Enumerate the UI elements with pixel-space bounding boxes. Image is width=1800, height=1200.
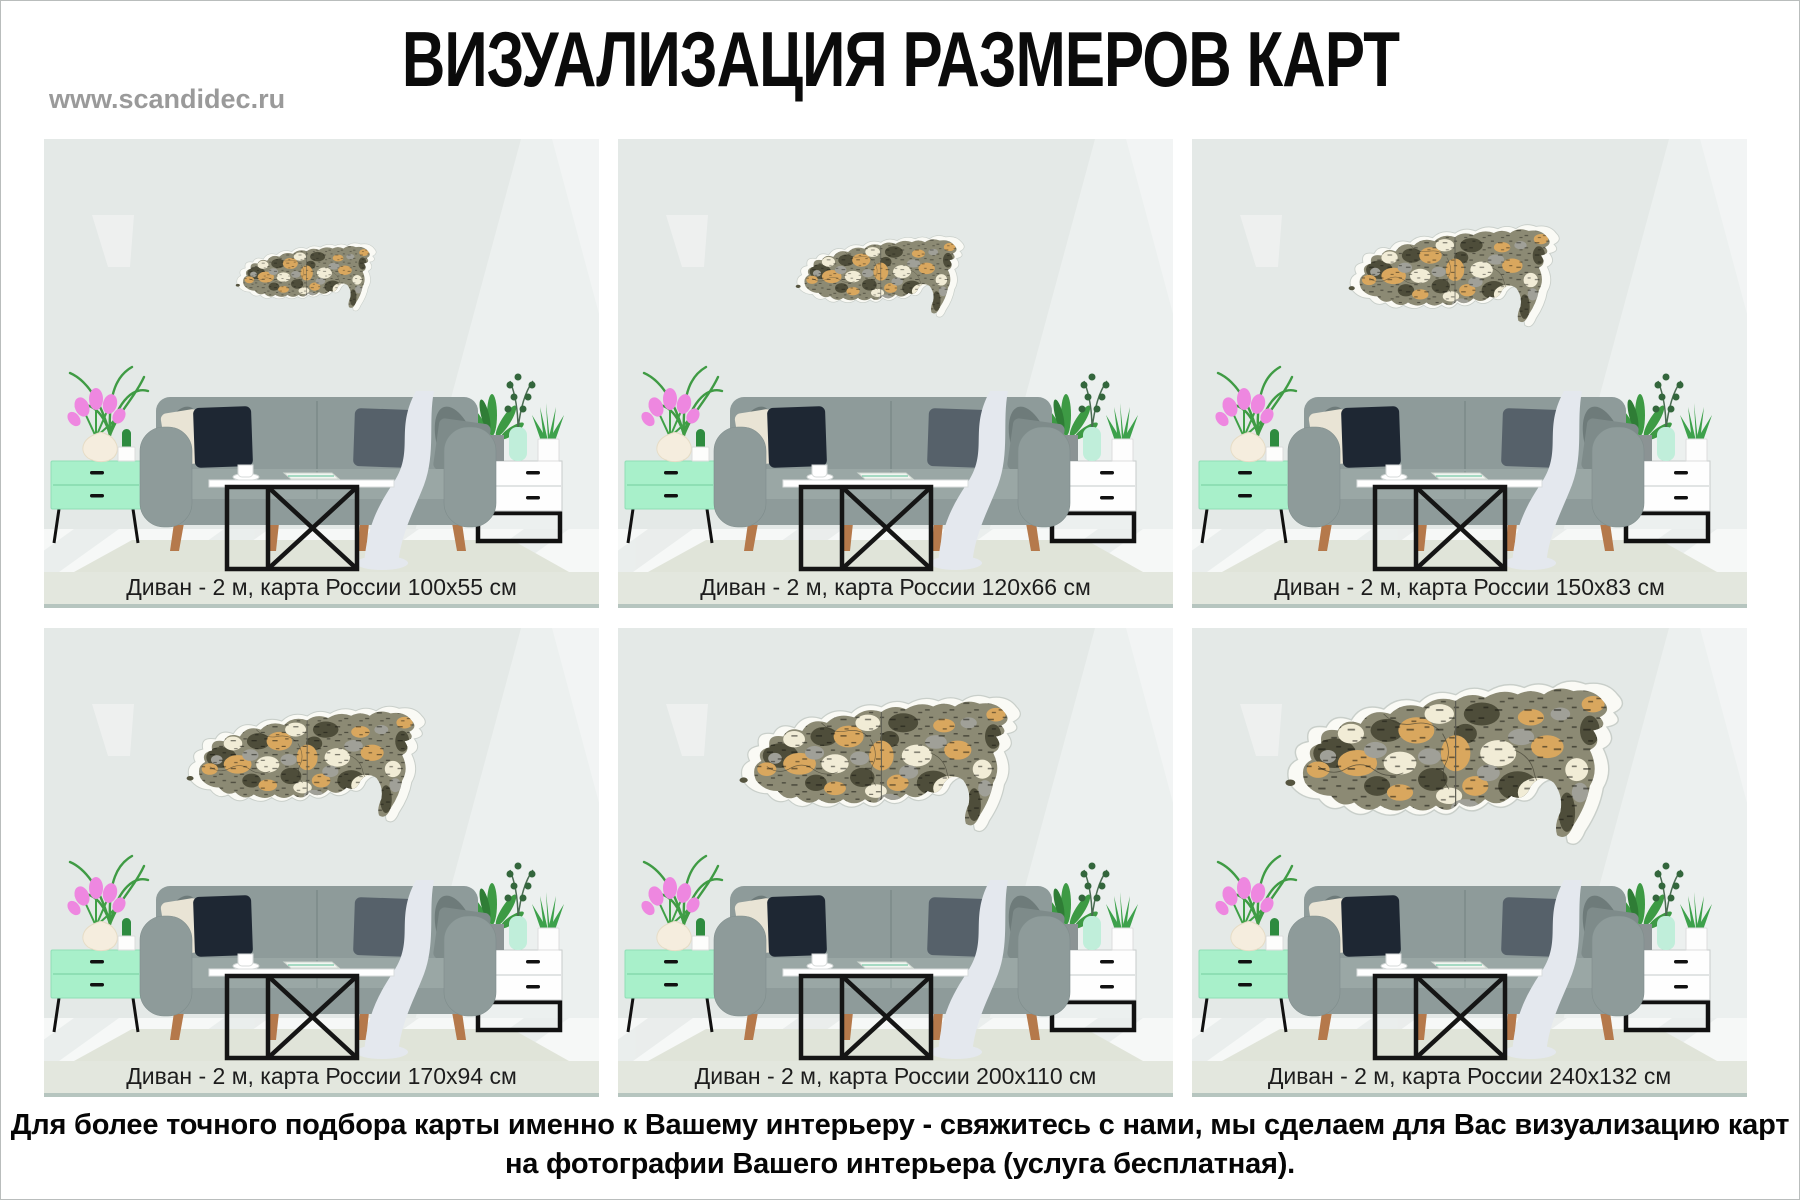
footer-line-2: на фотографии Вашего интерьера (услуга б… [0, 1145, 1800, 1184]
panel-caption: Диван - 2 м, карта России 120x66 см [618, 572, 1173, 608]
panel-map-170x94: Диван - 2 м, карта России 170x94 см [44, 628, 599, 1097]
panel-map-120x66: Диван - 2 м, карта России 120x66 см [618, 139, 1173, 608]
panel-map-100x55: Диван - 2 м, карта России 100x55 см [44, 139, 599, 608]
panel-map-200x110: Диван - 2 м, карта России 200x110 см [618, 628, 1173, 1097]
panel-map-240x132: Диван - 2 м, карта России 240x132 см [1192, 628, 1747, 1097]
room-scene [1192, 139, 1747, 572]
room-scene [618, 628, 1173, 1061]
panel-caption: Диван - 2 м, карта России 170x94 см [44, 1061, 599, 1097]
room-scene [44, 628, 599, 1061]
panel-caption: Диван - 2 м, карта России 240x132 см [1192, 1061, 1747, 1097]
panel-grid: Диван - 2 м, карта России 100x55 см Дива… [44, 139, 1747, 1097]
panel-map-150x83: Диван - 2 м, карта России 150x83 см [1192, 139, 1747, 608]
room-scene [1192, 628, 1747, 1061]
poster-page: www.scandidec.ru ВИЗУАЛИЗАЦИЯ РАЗМЕРОВ К… [0, 0, 1800, 1200]
footer-line-1: Для более точного подбора карты именно к… [0, 1106, 1800, 1145]
room-scene [44, 139, 599, 572]
panel-caption: Диван - 2 м, карта России 200x110 см [618, 1061, 1173, 1097]
page-title: ВИЗУАЛИЗАЦИЯ РАЗМЕРОВ КАРТ [0, 22, 1800, 96]
panel-caption: Диван - 2 м, карта России 150x83 см [1192, 572, 1747, 608]
footer-note: Для более точного подбора карты именно к… [0, 1106, 1800, 1184]
room-scene [618, 139, 1173, 572]
panel-caption: Диван - 2 м, карта России 100x55 см [44, 572, 599, 608]
